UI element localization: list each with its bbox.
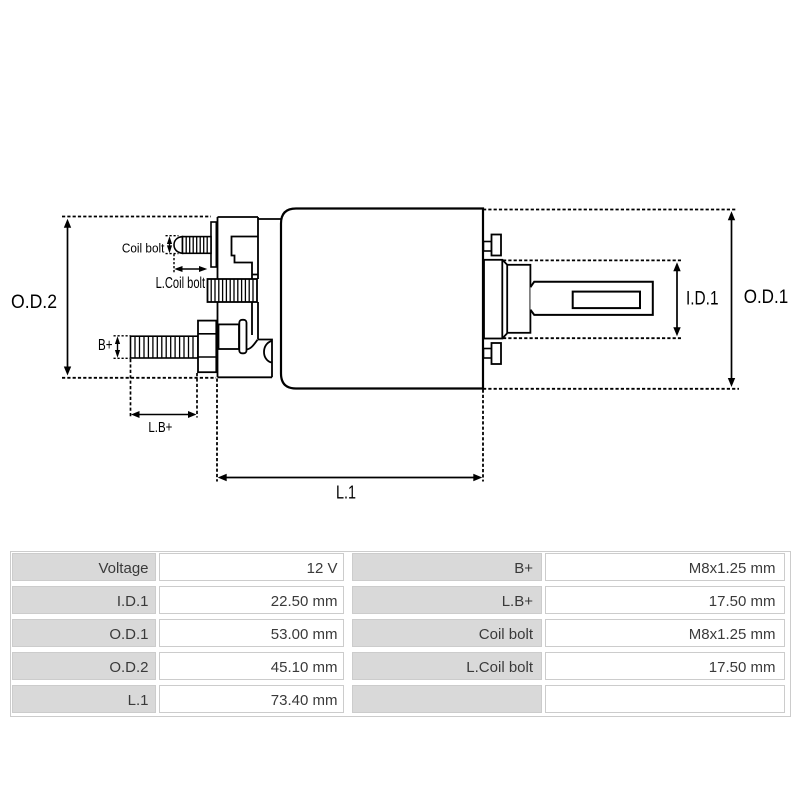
svg-text:L.1: L.1 <box>336 481 356 502</box>
svg-text:I.D.1: I.D.1 <box>686 289 719 310</box>
svg-text:O.D.1: O.D.1 <box>744 286 789 308</box>
svg-text:B+: B+ <box>98 337 113 354</box>
svg-text:L.B+: L.B+ <box>148 420 172 436</box>
svg-text:L.Coil bolt: L.Coil bolt <box>156 275 206 292</box>
svg-text:Coil bolt: Coil bolt <box>122 241 165 256</box>
svg-text:O.D.2: O.D.2 <box>11 292 57 313</box>
